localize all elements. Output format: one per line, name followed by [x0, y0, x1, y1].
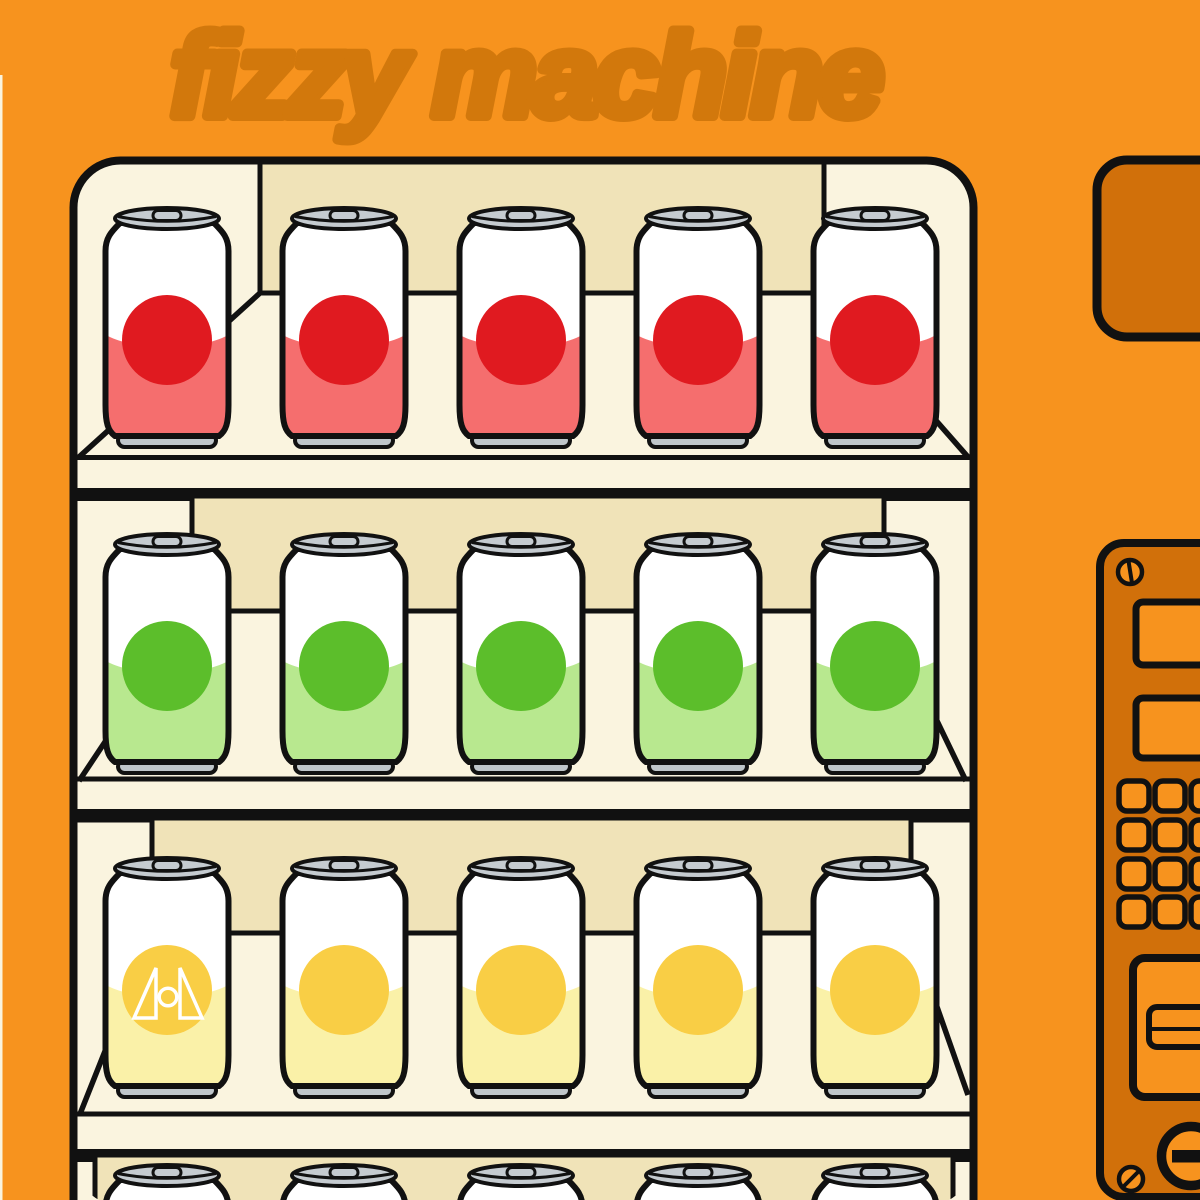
svg-text:fizzy machine: fizzy machine	[170, 10, 884, 142]
